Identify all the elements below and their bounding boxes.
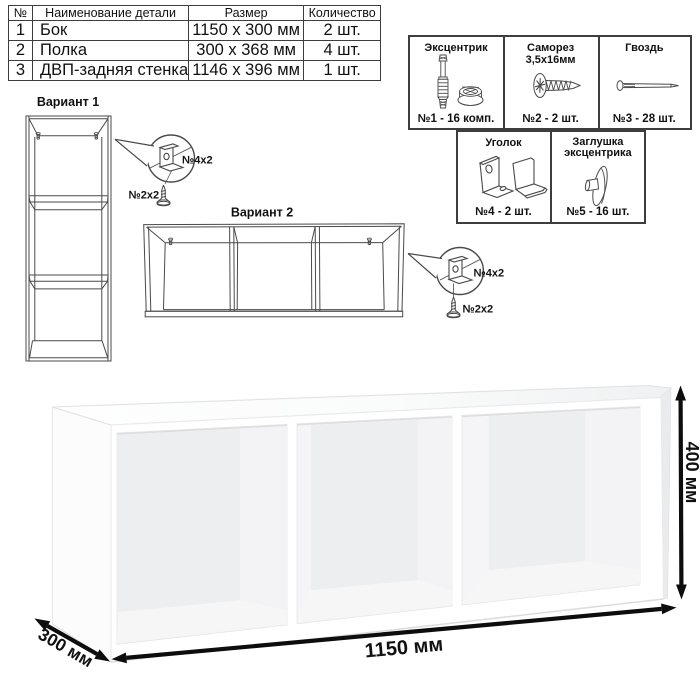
svg-text:№2х2: №2х2 — [129, 189, 160, 201]
svg-text:1150 мм: 1150 мм — [364, 633, 444, 662]
svg-text:№4х2: №4х2 — [474, 268, 505, 280]
svg-text:Вариант 1: Вариант 1 — [37, 95, 99, 109]
svg-text:№4х2: №4х2 — [182, 155, 213, 167]
svg-text:Вариант 2: Вариант 2 — [231, 206, 293, 220]
svg-text:№2х2: №2х2 — [463, 304, 494, 316]
svg-text:400 мм: 400 мм — [682, 442, 700, 504]
